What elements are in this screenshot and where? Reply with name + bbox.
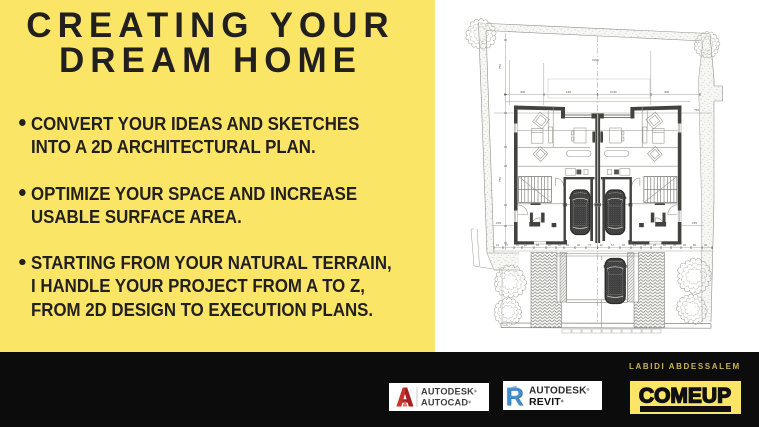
svg-text:1030: 1030 [610, 90, 617, 94]
svg-text:155: 155 [496, 221, 501, 225]
svg-text:83: 83 [693, 243, 696, 247]
svg-text:1093: 1093 [592, 58, 599, 62]
svg-text:155: 155 [692, 221, 697, 225]
svg-text:AUTOCAD®: AUTOCAD® [421, 398, 471, 408]
svg-text:750: 750 [498, 177, 502, 182]
svg-text:89: 89 [566, 243, 569, 247]
svg-text:57: 57 [611, 243, 614, 247]
svg-text:94: 94 [622, 243, 625, 247]
svg-text:36: 36 [577, 243, 580, 247]
svg-text:46: 46 [683, 243, 686, 247]
svg-text:750: 750 [498, 64, 502, 69]
svg-text:20: 20 [600, 243, 603, 247]
svg-text:68: 68 [536, 243, 539, 247]
svg-text:REVIT®: REVIT® [529, 396, 564, 408]
svg-text:750: 750 [694, 108, 699, 112]
svg-text:10: 10 [496, 243, 499, 247]
svg-text:AUTODESK®: AUTODESK® [529, 386, 590, 397]
svg-text:400: 400 [520, 90, 525, 94]
svg-text:25: 25 [653, 243, 656, 247]
svg-text:COMEUP: COMEUP [639, 385, 731, 408]
svg-text:140: 140 [566, 90, 571, 94]
svg-text:400: 400 [664, 90, 669, 94]
svg-text:47: 47 [505, 243, 508, 247]
svg-text:73: 73 [588, 243, 591, 247]
svg-text:AUTODESK®: AUTODESK® [421, 387, 477, 397]
